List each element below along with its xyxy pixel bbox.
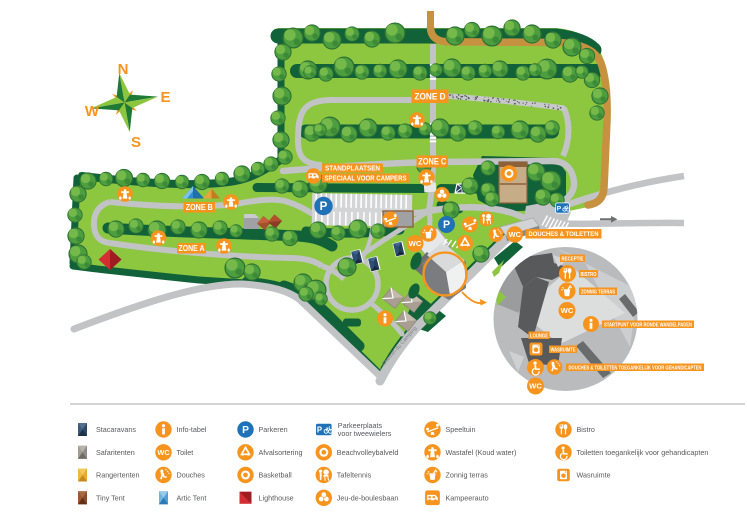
svg-text:N: N <box>118 61 129 78</box>
svg-text:Tafeltennis: Tafeltennis <box>337 471 372 480</box>
svg-text:Kampeerauto: Kampeerauto <box>446 493 489 502</box>
svg-text:Bistro: Bistro <box>577 425 595 434</box>
svg-text:ZONNIG TERRAS: ZONNIG TERRAS <box>581 289 615 295</box>
svg-text:DOUCHES & TOILETTEN: DOUCHES & TOILETTEN <box>529 231 600 238</box>
svg-text:Artic Tent: Artic Tent <box>177 493 207 502</box>
svg-text:WASRUIMTE: WASRUIMTE <box>551 347 576 353</box>
svg-text:DOUCHES & TOILETTEN TOEGANKELI: DOUCHES & TOILETTEN TOEGANKELIJK VOOR GE… <box>569 365 702 371</box>
svg-text:Wasruimte: Wasruimte <box>577 471 611 480</box>
svg-text:Lighthouse: Lighthouse <box>259 493 294 502</box>
svg-text:STANDPLAATSEN: STANDPLAATSEN <box>325 164 380 173</box>
svg-text:Toilet: Toilet <box>177 448 194 457</box>
svg-text:BISTRO: BISTRO <box>581 272 597 278</box>
svg-text:voor tweewielers: voor tweewielers <box>338 429 392 438</box>
svg-text:ZONE B: ZONE B <box>186 203 213 212</box>
svg-text:Safaritenten: Safaritenten <box>96 448 135 457</box>
svg-text:Basketball: Basketball <box>259 471 293 480</box>
svg-text:Tiny Tent: Tiny Tent <box>96 493 125 502</box>
svg-text:Stacaravans: Stacaravans <box>96 425 136 434</box>
svg-text:Parkeren: Parkeren <box>259 425 288 434</box>
svg-text:E: E <box>160 89 170 106</box>
svg-text:LOUNGE: LOUNGE <box>530 333 548 339</box>
svg-text:Wastafel (Koud water): Wastafel (Koud water) <box>446 448 517 457</box>
svg-text:Zonnig terras: Zonnig terras <box>446 471 489 480</box>
svg-text:W: W <box>85 103 100 120</box>
svg-text:STARTPUNT VOOR RONDE WANDELPAD: STARTPUNT VOOR RONDE WANDELPADEN <box>604 322 692 328</box>
svg-text:SPECIAAL VOOR CAMPERS: SPECIAAL VOOR CAMPERS <box>325 174 407 183</box>
svg-text:ZONE C: ZONE C <box>418 157 447 167</box>
svg-text:RECEPTIE: RECEPTIE <box>562 256 584 262</box>
svg-text:Beachvolleybalveld: Beachvolleybalveld <box>337 448 399 457</box>
svg-text:Afvalsortering: Afvalsortering <box>259 448 303 457</box>
svg-text:Info-tabel: Info-tabel <box>177 425 207 434</box>
svg-text:Jeu-de-boulesbaan: Jeu-de-boulesbaan <box>337 493 399 502</box>
svg-text:Rangertenten: Rangertenten <box>96 471 140 480</box>
svg-text:Douches: Douches <box>177 471 206 480</box>
svg-text:Toiletten toegankelijk voor ge: Toiletten toegankelijk voor gehandicapte… <box>577 448 709 457</box>
svg-text:Speeltuin: Speeltuin <box>446 425 476 434</box>
svg-text:ZONE D: ZONE D <box>415 92 446 103</box>
svg-text:ZONE A: ZONE A <box>179 244 205 253</box>
svg-text:S: S <box>131 134 141 151</box>
